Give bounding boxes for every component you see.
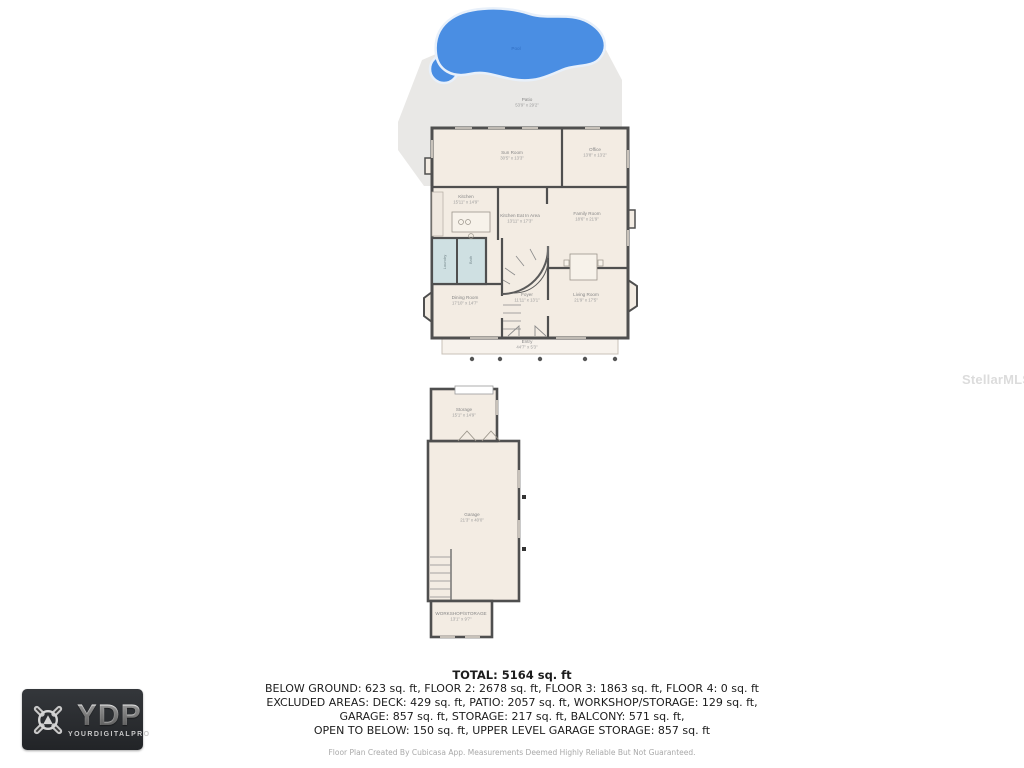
kitchen-island <box>452 212 490 232</box>
ydp-logo: YDP YOURDIGITALPRO <box>22 689 143 750</box>
summary-line-excluded-3: OPEN TO BELOW: 150 sq. ft, UPPER LEVEL G… <box>0 724 1024 738</box>
pool-label: Pool <box>511 47 520 52</box>
porch-columns <box>470 357 617 361</box>
garage-side-posts <box>522 495 526 551</box>
kitchen-counter <box>432 192 443 236</box>
storage-outline <box>431 389 497 441</box>
floor2-outline <box>432 128 628 338</box>
workshop-outline <box>431 601 492 637</box>
room-label-bath: Bath <box>469 256 473 264</box>
summary-line-floors: BELOW GROUND: 623 sq. ft, FLOOR 2: 2678 … <box>0 682 1024 696</box>
ydp-logo-abbr: YDP <box>77 702 142 730</box>
living-room-table <box>564 254 603 280</box>
summary-line-excluded-1: EXCLUDED AREAS: DECK: 429 sq. ft, PATIO:… <box>0 696 1024 710</box>
floor-plan-graphics <box>0 0 1024 768</box>
wet-rooms <box>432 238 486 284</box>
stellar-mls-watermark: StellarMLS <box>962 372 1024 387</box>
ydp-logo-text: YDP YOURDIGITALPRO <box>68 702 150 738</box>
entry-porch <box>442 338 618 354</box>
garage-outline <box>428 441 519 601</box>
room-label-laundry: Laundry <box>443 255 447 270</box>
floor-plan-page: Pool Patio 53'9" x 29'2" Sun Room 30'5" … <box>0 0 1024 768</box>
disclaimer-text: Floor Plan Created By Cubicasa App. Meas… <box>0 748 1024 757</box>
total-area-line: TOTAL: 5164 sq. ft <box>0 668 1024 682</box>
summary-line-excluded-2: GARAGE: 857 sq. ft, STORAGE: 217 sq. ft,… <box>0 710 1024 724</box>
storage-door-recess <box>455 386 493 394</box>
area-summary: TOTAL: 5164 sq. ft BELOW GROUND: 623 sq.… <box>0 668 1024 738</box>
ydp-logo-name: YOURDIGITALPRO <box>68 731 150 738</box>
drone-camera-icon <box>28 700 68 740</box>
